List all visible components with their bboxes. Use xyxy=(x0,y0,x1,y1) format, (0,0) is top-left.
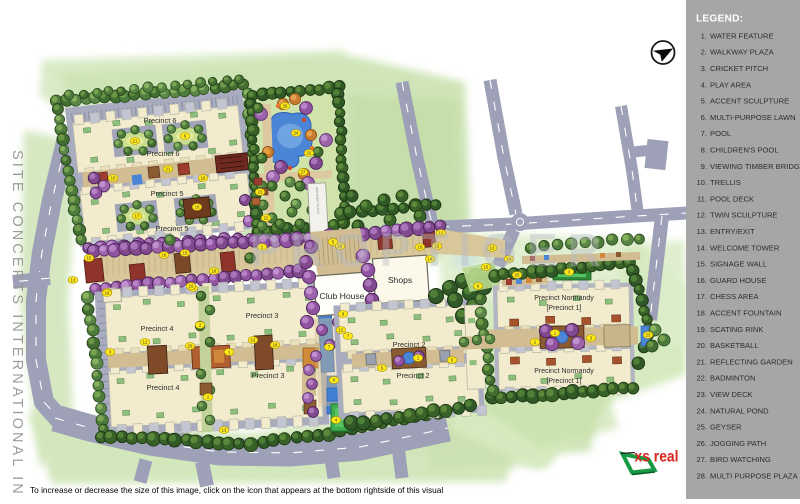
svg-text:SIGNAGE WALL: SIGNAGE WALL xyxy=(710,260,767,269)
svg-text:21: 21 xyxy=(133,139,138,144)
svg-text:15: 15 xyxy=(183,251,188,256)
svg-text:Precinct 5: Precinct 5 xyxy=(151,189,184,198)
svg-text:23: 23 xyxy=(646,333,651,338)
svg-text:7.: 7. xyxy=(701,129,707,138)
svg-text:WELCOME TOWER: WELCOME TOWER xyxy=(710,243,780,252)
svg-text:BADMINTON: BADMINTON xyxy=(710,374,755,383)
svg-text:1.: 1. xyxy=(701,31,707,40)
svg-text:NATURAL POND: NATURAL POND xyxy=(710,406,769,415)
svg-text:ACCENT SCULPTURE: ACCENT SCULPTURE xyxy=(710,97,789,106)
svg-text:22.: 22. xyxy=(696,374,707,383)
svg-text:20.: 20. xyxy=(696,341,707,350)
svg-text:GUARD HOUSE: GUARD HOUSE xyxy=(710,276,767,285)
svg-text:ENTRY/EXIT: ENTRY/EXIT xyxy=(710,227,755,236)
svg-text:10.: 10. xyxy=(696,178,707,187)
svg-text:Precinct 2: Precinct 2 xyxy=(397,371,430,380)
svg-text:27: 27 xyxy=(301,170,306,175)
svg-text:10: 10 xyxy=(111,176,116,181)
svg-text:18: 18 xyxy=(201,176,206,181)
svg-text:27.: 27. xyxy=(696,455,707,464)
svg-text:TRELLIS: TRELLIS xyxy=(710,178,741,187)
svg-text:13: 13 xyxy=(222,428,227,433)
svg-text:GEYSER: GEYSER xyxy=(710,423,742,432)
svg-text:LEGEND:: LEGEND: xyxy=(696,14,743,25)
svg-text:16: 16 xyxy=(105,291,110,296)
svg-text:16: 16 xyxy=(189,284,194,289)
svg-text:BASKETBALL: BASKETBALL xyxy=(710,341,759,350)
svg-text:[Precinct 1]: [Precinct 1] xyxy=(546,378,581,385)
svg-text:20: 20 xyxy=(188,344,193,349)
svg-text:21: 21 xyxy=(166,167,171,172)
svg-text:Precinct 4: Precinct 4 xyxy=(147,383,180,392)
svg-text:15: 15 xyxy=(87,256,92,261)
svg-text:14.: 14. xyxy=(696,243,707,252)
svg-text:Precinct Normandy: Precinct Normandy xyxy=(534,368,594,375)
svg-text:SITE CONCEPTS INTERNATIONAL IN: SITE CONCEPTS INTERNATIONAL IN xyxy=(9,150,25,497)
svg-text:WATER FEATURE: WATER FEATURE xyxy=(710,31,774,40)
svg-text:16.: 16. xyxy=(696,276,707,285)
svg-text:CHESS AREA: CHESS AREA xyxy=(710,292,759,301)
svg-text:17: 17 xyxy=(135,214,140,219)
svg-text:VIEWING TIMBER BRIDGE: VIEWING TIMBER BRIDGE xyxy=(710,162,800,171)
svg-text:PROPTIGER: PROPTIGER xyxy=(250,224,611,276)
svg-text:18: 18 xyxy=(195,205,200,210)
svg-text:JOGGING PATH: JOGGING PATH xyxy=(710,439,766,448)
svg-text:24.: 24. xyxy=(696,406,707,415)
svg-text:POOL: POOL xyxy=(710,129,731,138)
svg-text:MULTI PURPOSE PLAZA: MULTI PURPOSE PLAZA xyxy=(710,472,799,481)
svg-text:21.: 21. xyxy=(696,357,707,366)
svg-text:Precinct 2: Precinct 2 xyxy=(393,340,426,349)
svg-text:15.: 15. xyxy=(696,260,707,269)
svg-text:12: 12 xyxy=(143,340,148,345)
svg-text:3.: 3. xyxy=(701,64,707,73)
svg-text:Precinct 5: Precinct 5 xyxy=(156,224,189,233)
svg-text:28.: 28. xyxy=(696,472,707,481)
svg-text:16: 16 xyxy=(162,253,167,258)
svg-text:22: 22 xyxy=(307,151,312,156)
svg-text:Precinct 6: Precinct 6 xyxy=(144,116,177,125)
svg-text:12: 12 xyxy=(339,328,344,333)
svg-text:Precinct 3: Precinct 3 xyxy=(246,311,279,320)
svg-text:CRICKET PITCH: CRICKET PITCH xyxy=(710,64,768,73)
svg-text:23: 23 xyxy=(258,190,263,195)
svg-text:17.: 17. xyxy=(696,292,707,301)
svg-text:VIEW DECK: VIEW DECK xyxy=(710,390,753,399)
svg-text:26: 26 xyxy=(283,104,288,109)
svg-text:[Precinct 1]: [Precinct 1] xyxy=(546,305,581,312)
svg-text:Club House: Club House xyxy=(320,291,365,301)
svg-text:REFLECTING GARDEN: REFLECTING GARDEN xyxy=(710,357,793,366)
svg-text:Precinct 6: Precinct 6 xyxy=(147,149,180,158)
svg-text:TWIN SCULPTURE: TWIN SCULPTURE xyxy=(710,211,778,220)
svg-text:18: 18 xyxy=(212,269,217,274)
svg-text:CHILDREN'S POOL: CHILDREN'S POOL xyxy=(710,146,779,155)
svg-text:22: 22 xyxy=(264,216,269,221)
svg-text:4.: 4. xyxy=(701,80,707,89)
svg-text:5.: 5. xyxy=(701,97,707,106)
svg-text:ACCENT FOUNTAIN: ACCENT FOUNTAIN xyxy=(710,309,781,318)
svg-text:9.: 9. xyxy=(701,162,707,171)
svg-text:Shops: Shops xyxy=(388,275,412,285)
svg-text:2.: 2. xyxy=(701,48,707,57)
svg-text:BIRD WATCHING: BIRD WATCHING xyxy=(710,455,771,464)
svg-text:24: 24 xyxy=(294,131,299,136)
svg-text:SCATING RINK: SCATING RINK xyxy=(710,325,763,334)
svg-text:19.: 19. xyxy=(696,325,707,334)
svg-text:Precinct 3: Precinct 3 xyxy=(252,371,285,380)
svg-text:13.: 13. xyxy=(696,227,707,236)
svg-text:13: 13 xyxy=(71,278,76,283)
svg-text:12.: 12. xyxy=(696,211,707,220)
svg-text:POOL DECK: POOL DECK xyxy=(710,194,754,203)
svg-text:25.: 25. xyxy=(696,423,707,432)
svg-text:xs real: xs real xyxy=(635,449,679,466)
svg-text:11.: 11. xyxy=(697,194,707,203)
svg-text:12: 12 xyxy=(251,338,256,343)
svg-text:6.: 6. xyxy=(701,113,707,122)
svg-text:18.: 18. xyxy=(696,309,707,318)
svg-text:26.: 26. xyxy=(696,439,707,448)
svg-text:18: 18 xyxy=(273,343,278,348)
svg-text:To increase or decrease the si: To increase or decrease the size of this… xyxy=(30,485,443,495)
svg-text:23.: 23. xyxy=(696,390,707,399)
svg-text:PLAY AREA: PLAY AREA xyxy=(710,80,752,89)
svg-text:Precinct 4: Precinct 4 xyxy=(141,324,174,333)
svg-text:MULTI-PURPOSE LAWN: MULTI-PURPOSE LAWN xyxy=(710,113,796,122)
svg-text:8.: 8. xyxy=(701,146,707,155)
svg-text:Precinct Normandy: Precinct Normandy xyxy=(534,295,594,302)
svg-text:WALKWAY PLAZA: WALKWAY PLAZA xyxy=(710,48,775,57)
